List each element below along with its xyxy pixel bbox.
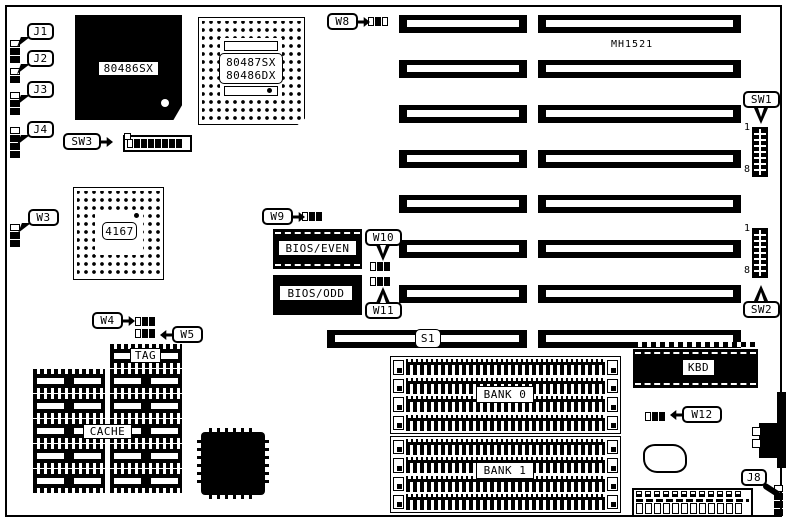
jumper-pin bbox=[659, 412, 665, 421]
board-model-label: MH1521 bbox=[611, 39, 653, 50]
callout-j1-text: J1 bbox=[33, 25, 47, 38]
bank0-label-text: BANK 0 bbox=[484, 388, 527, 401]
isa-slot bbox=[538, 60, 741, 78]
cache-chip bbox=[110, 444, 182, 468]
isa-slot bbox=[399, 285, 527, 303]
jumper-pin bbox=[10, 143, 20, 150]
switch-position bbox=[148, 139, 154, 148]
callout-w4-text: W4 bbox=[100, 314, 114, 327]
jumper-pin bbox=[309, 212, 315, 221]
simm-clip bbox=[607, 495, 618, 509]
jumper-pin bbox=[10, 48, 20, 55]
power-hole bbox=[654, 503, 661, 514]
jumper-pin bbox=[774, 501, 783, 508]
isa-slot bbox=[399, 150, 527, 168]
bios-odd-label-text: BIOS/ODD bbox=[288, 287, 345, 300]
callout-tail bbox=[754, 108, 768, 124]
simm-clip bbox=[393, 495, 404, 509]
jumper-pin bbox=[377, 277, 383, 286]
simm-clip bbox=[607, 477, 618, 491]
fpu-label-line1: 80487SX bbox=[226, 56, 276, 69]
jumper-w11 bbox=[370, 277, 390, 286]
bios-odd-label: BIOS/ODD bbox=[279, 285, 353, 301]
tag-label-text: TAG bbox=[135, 349, 156, 362]
callout-sw1: SW1 bbox=[743, 91, 780, 108]
cache-label-text: CACHE bbox=[90, 425, 126, 438]
simm-clip bbox=[393, 440, 404, 454]
sw2-pin1-label: 1 bbox=[744, 224, 750, 234]
power-pin bbox=[708, 491, 714, 497]
power-pin bbox=[717, 491, 723, 497]
power-hole bbox=[690, 503, 697, 514]
chip-body-bar bbox=[37, 453, 64, 459]
simm-clip bbox=[393, 397, 404, 412]
callout-w4: W4 bbox=[92, 312, 123, 329]
switch-position bbox=[155, 139, 161, 148]
simm-clip bbox=[393, 360, 404, 375]
power-connector-pins bbox=[634, 490, 751, 499]
chip-body-bar bbox=[114, 403, 141, 409]
jumper-w12 bbox=[645, 412, 665, 421]
callout-j2: J2 bbox=[27, 50, 54, 67]
fpu-label-line2: 80486DX bbox=[226, 69, 276, 82]
isa-slot-s1: S1 bbox=[327, 330, 527, 348]
jumper-pin bbox=[10, 224, 20, 231]
callout-w8-text: W8 bbox=[335, 15, 349, 28]
power-hole bbox=[636, 503, 643, 514]
callout-j3: J3 bbox=[27, 81, 54, 98]
power-pin bbox=[699, 491, 705, 497]
callout-sw2: SW2 bbox=[743, 301, 780, 318]
callout-w9: W9 bbox=[262, 208, 293, 225]
jumper-w4 bbox=[135, 317, 155, 326]
switch-notch bbox=[124, 133, 131, 140]
jumper-pin bbox=[316, 212, 322, 221]
jumper-pin bbox=[135, 329, 141, 338]
chip-body-bar bbox=[74, 478, 101, 484]
isa-slot bbox=[399, 60, 527, 78]
callout-j2-text: J2 bbox=[33, 52, 47, 65]
callout-tail bbox=[376, 287, 390, 303]
switch-position bbox=[162, 139, 168, 148]
chip-4167-label-text: 4167 bbox=[105, 225, 134, 238]
simm-clip bbox=[393, 416, 404, 431]
jumper-pin bbox=[10, 56, 20, 63]
callout-w3-text: W3 bbox=[36, 211, 50, 224]
power-hole bbox=[717, 503, 724, 514]
power-pin bbox=[690, 491, 696, 497]
power-connector-holes bbox=[634, 502, 751, 515]
simm-clip bbox=[393, 379, 404, 394]
callout-w9-text: W9 bbox=[270, 210, 284, 223]
jumper-pin bbox=[382, 17, 388, 26]
qfp-pins bbox=[265, 440, 269, 487]
qfp-chip bbox=[197, 428, 269, 499]
callout-tail bbox=[754, 285, 768, 301]
simm-socket bbox=[393, 494, 618, 510]
motherboard-layout-diagram: J1 J2 J3 J4 W3 80486SX 80487SX 80486DX S… bbox=[0, 0, 791, 527]
callout-j4-text: J4 bbox=[33, 123, 47, 136]
chip-body-bar bbox=[37, 428, 64, 434]
bank0-label: BANK 0 bbox=[476, 386, 534, 403]
dip-switch-sw2 bbox=[752, 228, 768, 278]
jumper-pin bbox=[10, 108, 20, 115]
power-hole bbox=[663, 503, 670, 514]
simm-clip bbox=[607, 416, 618, 431]
s1-label-text: S1 bbox=[421, 332, 435, 345]
qfp-body bbox=[201, 432, 265, 495]
cache-chip bbox=[33, 369, 105, 393]
power-hole bbox=[735, 503, 742, 514]
chip-body-bar bbox=[74, 403, 101, 409]
cache-chip bbox=[33, 469, 105, 493]
chip-body-bar bbox=[151, 403, 178, 409]
sw1-pin1-label: 1 bbox=[744, 123, 750, 133]
power-hole bbox=[645, 503, 652, 514]
jumper-pin bbox=[370, 262, 376, 271]
callout-j3-text: J3 bbox=[33, 83, 47, 96]
chip-body-bar bbox=[74, 378, 101, 384]
jumper-pin bbox=[149, 317, 155, 326]
jumper-pin bbox=[10, 135, 20, 142]
switch-position bbox=[169, 139, 175, 148]
isa-slot bbox=[399, 195, 527, 213]
jumper-pin bbox=[645, 412, 651, 421]
dip-switch-sw3 bbox=[123, 135, 192, 152]
cache-label: CACHE bbox=[83, 424, 132, 439]
keyboard-connector-pin bbox=[752, 427, 761, 436]
power-pin bbox=[681, 491, 687, 497]
cpu-label: 80486SX bbox=[98, 61, 159, 76]
cache-chip bbox=[110, 369, 182, 393]
chip-body-bar bbox=[37, 378, 64, 384]
jumper-pin bbox=[10, 240, 20, 247]
switch-position bbox=[176, 139, 182, 148]
chip-body-bar bbox=[151, 428, 178, 434]
jumper-pin bbox=[370, 277, 376, 286]
simm-pins bbox=[406, 494, 605, 510]
dip-switch-sw1 bbox=[752, 127, 768, 177]
keyboard-connector-pin bbox=[752, 439, 761, 448]
simm-clip bbox=[607, 440, 618, 454]
chip-body-bar bbox=[74, 453, 101, 459]
jumper-pin bbox=[10, 92, 20, 99]
jumper-pin bbox=[652, 412, 658, 421]
sw1-pin8-label: 8 bbox=[744, 165, 750, 175]
callout-w3: W3 bbox=[28, 209, 59, 226]
cache-chip-column-right bbox=[110, 344, 182, 493]
battery-outline bbox=[643, 444, 687, 473]
isa-slot-column-right bbox=[538, 15, 741, 348]
jumper-pin bbox=[10, 127, 20, 134]
jumper-pin bbox=[377, 262, 383, 271]
callout-sw1-text: SW1 bbox=[751, 93, 772, 106]
isa-slot bbox=[399, 105, 527, 123]
jumper-w5 bbox=[135, 329, 155, 338]
jumper-pin bbox=[384, 277, 390, 286]
isa-slot bbox=[399, 15, 527, 33]
power-pin bbox=[672, 491, 678, 497]
callout-j8-text: J8 bbox=[747, 471, 761, 484]
isa-slot bbox=[538, 150, 741, 168]
chip-body-bar bbox=[114, 453, 141, 459]
simm-clip bbox=[607, 379, 618, 394]
cpu-pin1-dot bbox=[161, 99, 169, 107]
simm-pins bbox=[406, 439, 605, 455]
jumper-pin bbox=[375, 17, 381, 26]
power-hole bbox=[726, 503, 733, 514]
simm-socket bbox=[393, 415, 618, 432]
cache-chip bbox=[110, 469, 182, 493]
simm-clip bbox=[393, 458, 404, 472]
simm-clip bbox=[607, 397, 618, 412]
chip-body-bar bbox=[151, 478, 178, 484]
callout-w12-text: W12 bbox=[691, 408, 712, 421]
simm-clip bbox=[393, 477, 404, 491]
bank1-label-text: BANK 1 bbox=[484, 464, 527, 477]
jumper-w9 bbox=[302, 212, 322, 221]
power-hole bbox=[681, 503, 688, 514]
callout-j8: J8 bbox=[741, 469, 767, 486]
jumper-pin bbox=[774, 509, 783, 516]
isa-slot bbox=[538, 195, 741, 213]
switch-position bbox=[127, 139, 133, 148]
jumper-pin bbox=[142, 317, 148, 326]
callout-w12: W12 bbox=[682, 406, 722, 423]
switch-position bbox=[134, 139, 140, 148]
chip-4167-label: 4167 bbox=[102, 222, 137, 240]
switch-position bbox=[141, 139, 147, 148]
jumper-pin bbox=[149, 329, 155, 338]
power-connector bbox=[632, 488, 753, 517]
callout-w5-text: W5 bbox=[180, 328, 194, 341]
callout-w10-text: W10 bbox=[373, 231, 394, 244]
callout-w11-text: W11 bbox=[373, 304, 394, 317]
simm-pins bbox=[406, 415, 605, 432]
jumper-w8 bbox=[368, 17, 388, 26]
chip-4167-pin1-dot bbox=[134, 213, 139, 218]
power-hole bbox=[672, 503, 679, 514]
fpu-pin1-dot bbox=[267, 88, 272, 93]
chip-body-bar bbox=[151, 378, 178, 384]
chip-body-bar bbox=[114, 478, 141, 484]
power-pin bbox=[645, 491, 651, 497]
chip-body-bar bbox=[37, 403, 64, 409]
callout-sw3: SW3 bbox=[63, 133, 101, 150]
power-pin bbox=[636, 491, 642, 497]
qfp-pins bbox=[209, 495, 257, 499]
simm-clip bbox=[607, 360, 618, 375]
power-hole bbox=[708, 503, 715, 514]
power-pin bbox=[735, 491, 741, 497]
callout-j1: J1 bbox=[27, 23, 54, 40]
callout-w11: W11 bbox=[365, 302, 402, 319]
jumper-pin bbox=[384, 262, 390, 271]
isa-slot bbox=[538, 240, 741, 258]
jumper-pin bbox=[10, 151, 20, 158]
isa-slot bbox=[538, 15, 741, 33]
chip-body-bar bbox=[151, 453, 178, 459]
jumper-pin bbox=[135, 317, 141, 326]
callout-sw3-text: SW3 bbox=[71, 135, 92, 148]
simm-socket bbox=[393, 439, 618, 455]
callout-w8: W8 bbox=[327, 13, 358, 30]
power-pin bbox=[654, 491, 660, 497]
isa-slot bbox=[538, 105, 741, 123]
kbd-socket-pins bbox=[633, 342, 758, 347]
board-model-text: MH1521 bbox=[611, 39, 653, 50]
chip-body-bar bbox=[37, 478, 64, 484]
jumper-pin bbox=[142, 329, 148, 338]
simm-pins bbox=[406, 359, 605, 376]
kbd-label-text: KBD bbox=[688, 361, 709, 374]
power-hole bbox=[699, 503, 706, 514]
kbd-label: KBD bbox=[682, 359, 715, 376]
power-pin bbox=[726, 491, 732, 497]
isa-slot bbox=[399, 240, 527, 258]
bios-even-label-text: BIOS/EVEN bbox=[285, 242, 349, 255]
isa-slot-column-left bbox=[399, 15, 527, 303]
callout-sw2-text: SW2 bbox=[751, 303, 772, 316]
jumper-w10 bbox=[370, 262, 390, 271]
callout-w5: W5 bbox=[172, 326, 203, 343]
simm-socket bbox=[393, 359, 618, 376]
keyboard-connector bbox=[759, 423, 786, 458]
simm-clip bbox=[607, 458, 618, 472]
sw2-pin8-label: 8 bbox=[744, 266, 750, 276]
bios-even-label: BIOS/EVEN bbox=[278, 240, 357, 256]
fpu-label: 80487SX 80486DX bbox=[219, 53, 283, 84]
chip-body-bar bbox=[114, 378, 141, 384]
cache-chip bbox=[33, 394, 105, 418]
cache-chip bbox=[110, 394, 182, 418]
callout-tail bbox=[376, 245, 390, 261]
isa-slot bbox=[538, 285, 741, 303]
bank1-label: BANK 1 bbox=[476, 462, 534, 479]
jumper-pin bbox=[10, 232, 20, 239]
tag-label: TAG bbox=[130, 348, 161, 363]
callout-w10: W10 bbox=[365, 229, 402, 246]
power-pin bbox=[663, 491, 669, 497]
fpu-top-box bbox=[224, 41, 278, 51]
cpu-label-text: 80486SX bbox=[104, 62, 154, 75]
jumper-pin bbox=[10, 76, 20, 83]
s1-label: S1 bbox=[415, 329, 441, 348]
callout-j4: J4 bbox=[27, 121, 54, 138]
cache-chip bbox=[33, 444, 105, 468]
jumper-w3 bbox=[10, 224, 20, 247]
